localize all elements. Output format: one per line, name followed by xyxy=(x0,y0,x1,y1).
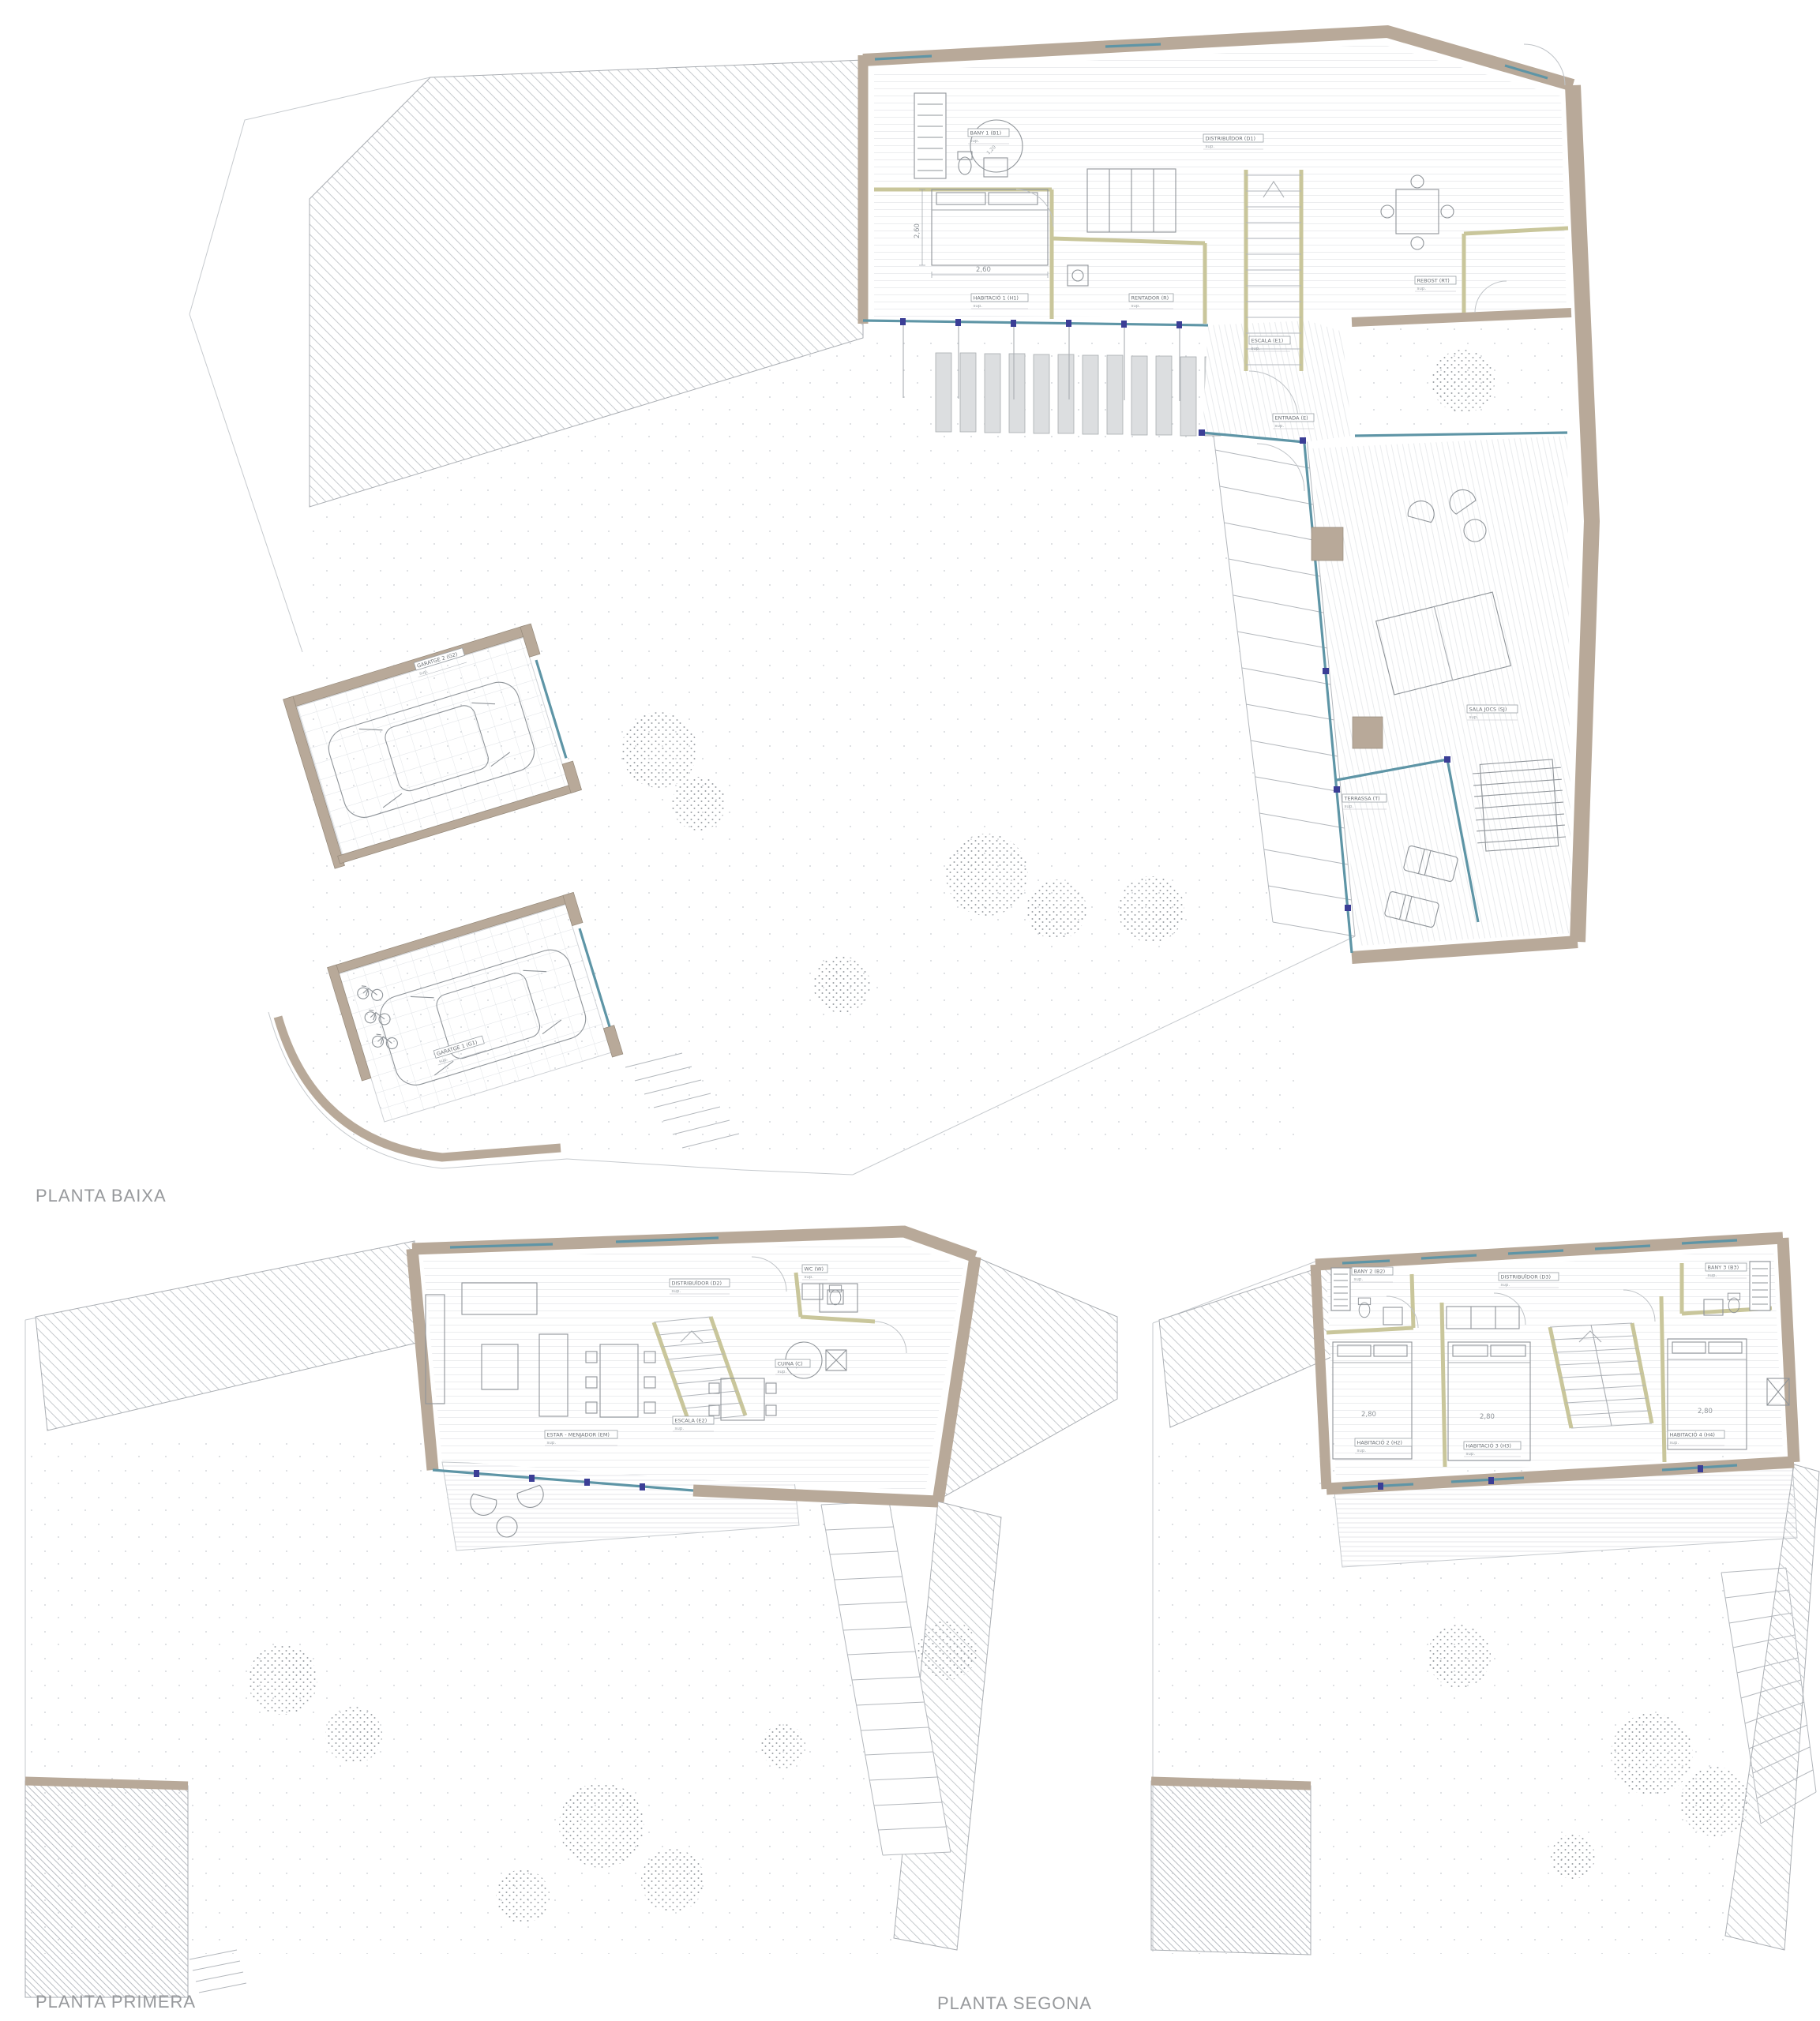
dimension-bed4: 2,80 xyxy=(1698,1408,1713,1415)
louver-window-icon xyxy=(1331,1268,1350,1310)
title-planta-primera: PLANTA PRIMERA xyxy=(36,1992,196,2012)
planter xyxy=(1353,717,1383,748)
svg-text:DISTRIBUÏDOR (D2): DISTRIBUÏDOR (D2) xyxy=(672,1280,722,1287)
svg-text:sup.: sup. xyxy=(1251,347,1261,351)
svg-text:TERRASSA (T): TERRASSA (T) xyxy=(1344,796,1380,802)
svg-text:HABITACIÓ 2 (H2): HABITACIÓ 2 (H2) xyxy=(1357,1439,1402,1446)
svg-text:sup.: sup. xyxy=(672,1289,681,1294)
svg-text:sup.: sup. xyxy=(1275,424,1285,429)
plan-planta-baixa: GARATGE 2 (G2) sup. GARATGE 1 (G1) sup. xyxy=(190,32,1592,1175)
title-planta-baixa: PLANTA BAIXA xyxy=(36,1186,167,1205)
svg-text:sup.: sup. xyxy=(1131,304,1141,309)
svg-text:ESTAR - MENJADOR (EM): ESTAR - MENJADOR (EM) xyxy=(547,1432,610,1438)
dimension-bed2: 2,80 xyxy=(1361,1411,1376,1419)
svg-text:sup.: sup. xyxy=(547,1441,557,1445)
svg-text:SALA JOCS (SJ): SALA JOCS (SJ) xyxy=(1469,707,1507,713)
svg-text:sup.: sup. xyxy=(1670,1441,1679,1445)
neighbour-roof xyxy=(25,1781,188,1997)
neighbour-roof xyxy=(1151,1781,1311,1955)
planter xyxy=(1312,527,1343,561)
svg-text:DISTRIBUÏDOR (D1): DISTRIBUÏDOR (D1) xyxy=(1206,135,1256,142)
svg-text:sup.: sup. xyxy=(974,304,983,309)
svg-text:sup.: sup. xyxy=(675,1427,685,1431)
drawing-sheet: GARATGE 2 (G2) sup. GARATGE 1 (G1) sup. xyxy=(0,0,1820,2021)
svg-text:sup.: sup. xyxy=(1206,144,1215,149)
svg-text:REBOST (RT): REBOST (RT) xyxy=(1417,278,1450,284)
svg-text:DISTRIBUÏDOR (D3): DISTRIBUÏDOR (D3) xyxy=(1501,1273,1552,1280)
svg-text:BANY 3 (B3): BANY 3 (B3) xyxy=(1708,1265,1739,1271)
svg-text:CUINA (C): CUINA (C) xyxy=(778,1361,803,1367)
svg-text:ENTRADA (E): ENTRADA (E) xyxy=(1275,415,1308,422)
svg-text:sup.: sup. xyxy=(1469,715,1479,720)
svg-text:sup.: sup. xyxy=(1501,1283,1510,1288)
svg-text:sup.: sup. xyxy=(805,1275,814,1280)
svg-text:sup.: sup. xyxy=(970,139,980,144)
svg-text:2,60: 2,60 xyxy=(976,266,991,274)
svg-text:sup.: sup. xyxy=(778,1370,787,1374)
floorplan-drawing: GARATGE 2 (G2) sup. GARATGE 1 (G1) sup. xyxy=(0,0,1820,2021)
plan-planta-segona: 2,80 2,80 2,80 DISTRIBUÏDOR (D3) sup. BA… xyxy=(1151,1238,1819,1955)
svg-text:ESCALA (E1): ESCALA (E1) xyxy=(1251,338,1284,344)
svg-text:BANY 1 (B1): BANY 1 (B1) xyxy=(970,130,1002,137)
svg-text:HABITACIÓ 4 (H4): HABITACIÓ 4 (H4) xyxy=(1670,1431,1715,1438)
louver-window-icon xyxy=(914,93,946,178)
louver-window-icon xyxy=(1750,1262,1770,1310)
svg-text:HABITACIÓ 1 (H1): HABITACIÓ 1 (H1) xyxy=(974,294,1019,302)
svg-text:BANY 2 (B2): BANY 2 (B2) xyxy=(1354,1269,1386,1275)
svg-text:sup.: sup. xyxy=(1345,804,1354,809)
svg-text:sup.: sup. xyxy=(1354,1277,1364,1282)
svg-text:sup.: sup. xyxy=(1466,1452,1476,1457)
svg-text:sup.: sup. xyxy=(1708,1273,1717,1278)
svg-text:sup.: sup. xyxy=(1417,287,1427,291)
title-planta-segona: PLANTA SEGONA xyxy=(937,1993,1092,2013)
svg-text:ESCALA (E2): ESCALA (E2) xyxy=(675,1418,707,1424)
dimension-bed3: 2,80 xyxy=(1480,1413,1495,1421)
svg-text:sup.: sup. xyxy=(1357,1449,1367,1453)
courtyard-tree xyxy=(1432,350,1495,413)
plan-planta-primera: 1,20 ESTAR - MENJADOR (EM) sup. DISTRIBU… xyxy=(25,1232,1117,1997)
roof-terrace-hatched xyxy=(36,1241,420,1430)
svg-text:2,60: 2,60 xyxy=(914,223,921,238)
svg-text:HABITACIÓ 3 (H3): HABITACIÓ 3 (H3) xyxy=(1466,1442,1511,1449)
svg-text:WC (W): WC (W) xyxy=(805,1266,824,1273)
svg-text:RENTADOR (R): RENTADOR (R) xyxy=(1131,295,1169,302)
